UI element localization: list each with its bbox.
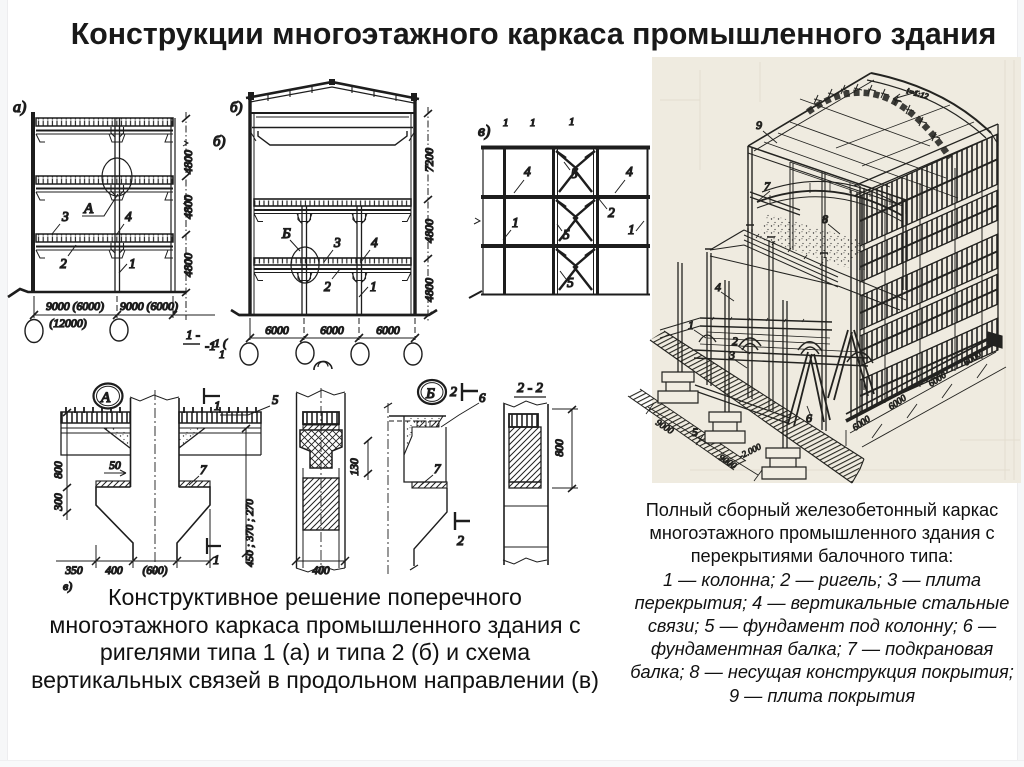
svg-text:2: 2 [450,385,457,400]
svg-text:5: 5 [272,392,279,407]
svg-text:400: 400 [105,565,123,577]
svg-text:i=1:12: i=1:12 [905,86,929,101]
svg-text:7200: 7200 [422,148,436,172]
svg-text:4800: 4800 [422,219,436,243]
svg-text:3: 3 [333,235,341,250]
svg-text:1: 1 [370,279,377,294]
svg-text:800: 800 [554,439,566,457]
svg-text:1: 1 [530,117,536,129]
svg-text:6: 6 [806,411,812,425]
svg-text:(600): (600) [143,565,168,577]
svg-text:350: 350 [64,565,83,577]
svg-text:(12000): (12000) [49,316,86,330]
svg-text:7: 7 [764,179,771,193]
svg-text:9000 (6000): 9000 (6000) [120,299,178,313]
svg-text:3: 3 [728,348,735,362]
svg-text:а): а) [13,99,26,116]
svg-text:4: 4 [715,280,721,294]
svg-text:3: 3 [61,209,69,224]
svg-text:5: 5 [692,425,698,439]
svg-text:1: 1 [503,117,509,129]
svg-text:1: 1 [628,222,635,237]
svg-text:9000 (6000): 9000 (6000) [46,299,104,313]
svg-text:5: 5 [567,275,574,290]
svg-text:4: 4 [524,164,531,179]
svg-text:1: 1 [213,552,220,567]
svg-text:А: А [100,390,111,406]
svg-text:8: 8 [822,212,828,226]
svg-text:50: 50 [109,460,121,472]
svg-text:1: 1 [512,215,519,230]
svg-text:в): в) [478,123,490,140]
svg-text:4: 4 [125,209,132,224]
svg-text:800: 800 [53,461,65,479]
svg-text:-2.000: -2.000 [737,441,763,461]
svg-text:7: 7 [200,462,207,477]
svg-text:1: 1 [219,347,225,361]
svg-text:2: 2 [457,534,464,549]
svg-text:7: 7 [434,461,441,476]
svg-text:Б: Б [281,226,291,242]
svg-text:Б: Б [425,386,435,402]
svg-text:1: 1 [688,318,694,332]
svg-text:400: 400 [312,565,330,577]
svg-text:1: 1 [214,398,221,413]
svg-text:2: 2 [732,334,738,348]
svg-text:б): б) [230,100,243,116]
svg-text:4800: 4800 [422,278,436,302]
svg-text:4: 4 [371,235,378,250]
svg-text:300: 300 [53,493,65,512]
svg-text:130: 130 [349,458,361,476]
svg-text:1: 1 [129,256,136,271]
svg-text:450 ; 370 ; 270: 450 ; 370 ; 270 [244,499,256,567]
svg-text:1: 1 [569,116,575,128]
svg-text:1 -: 1 - [186,327,200,342]
svg-text:4800: 4800 [181,195,195,219]
svg-text:6000: 6000 [265,323,289,337]
svg-text:2: 2 [324,279,331,294]
svg-text:2 - 2: 2 - 2 [517,381,543,396]
svg-text:6: 6 [479,390,486,405]
svg-text:6000: 6000 [320,323,344,337]
svg-text:б): б) [213,134,226,150]
svg-text:6000: 6000 [376,323,400,337]
svg-text:2: 2 [608,205,615,220]
svg-text:4800: 4800 [181,150,195,174]
svg-text:4800: 4800 [181,253,195,277]
svg-text:9: 9 [756,118,762,132]
svg-text:4: 4 [626,164,633,179]
svg-text:А: А [83,201,94,217]
svg-text:5: 5 [571,166,578,181]
svg-text:5: 5 [563,227,570,242]
svg-text:2: 2 [60,256,67,271]
